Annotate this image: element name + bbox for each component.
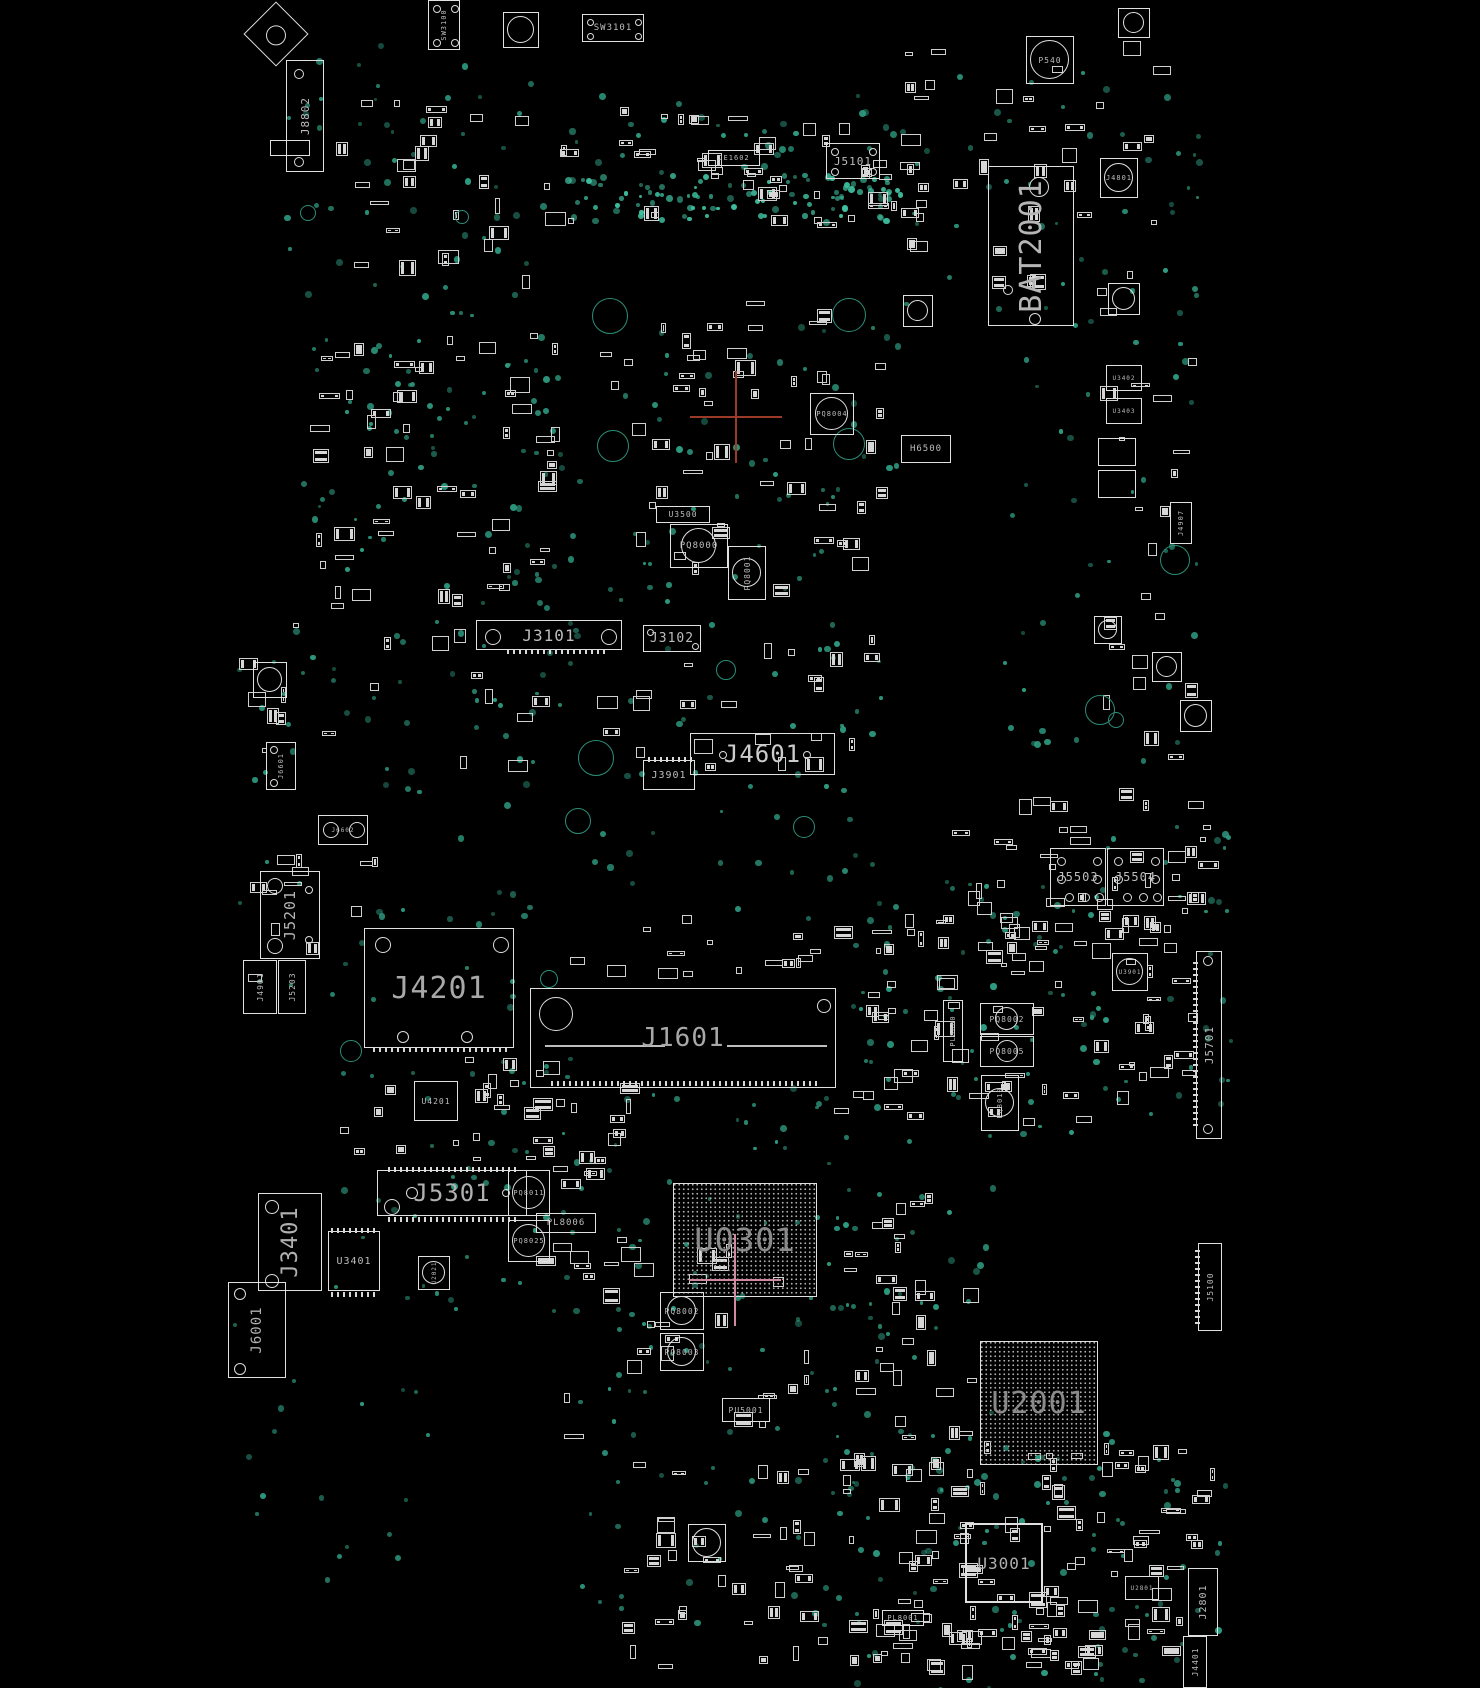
via-dot: [827, 875, 834, 882]
via-dot: [666, 195, 673, 202]
smd-pad: [1142, 1542, 1145, 1547]
via-dot: [788, 146, 795, 153]
via-dot: [454, 1307, 458, 1311]
via-dot: [345, 567, 350, 572]
via-dot: [710, 206, 715, 211]
smd-pad: [1058, 1607, 1063, 1610]
via-dot: [616, 1307, 621, 1312]
via-dot: [1192, 286, 1198, 292]
smd-part-outline: [1057, 1506, 1076, 1520]
via-dot: [564, 1275, 569, 1280]
via-dot: [647, 585, 652, 590]
smd-part-outline: [901, 134, 921, 146]
component-label-JE1602: JE1602: [709, 151, 759, 165]
via-dot: [947, 1210, 952, 1215]
via-dot: [636, 133, 641, 138]
smd-part-outline: [630, 1645, 636, 1660]
via-dot: [368, 536, 372, 540]
via-dot: [325, 338, 329, 342]
smd-part-outline: [553, 1243, 572, 1251]
via-dot: [912, 1355, 917, 1360]
smd-part-outline: [1132, 655, 1148, 669]
smd-part-outline: [951, 1486, 969, 1497]
smd-pad: [1078, 1526, 1081, 1529]
smd-pad: [851, 740, 854, 743]
via-dot: [623, 393, 629, 399]
smd-part-outline: [907, 929, 916, 935]
via-dot: [559, 465, 565, 471]
via-dot: [803, 194, 809, 200]
smd-part-outline: [857, 501, 866, 513]
smd-part-outline: [579, 1151, 595, 1164]
via-dot: [1067, 435, 1074, 442]
component-label-PL8000: PL8000: [923, 1022, 983, 1040]
via-dot: [474, 725, 479, 730]
smd-part-outline: [727, 348, 747, 359]
via-dot: [735, 1510, 742, 1517]
smd-pad: [843, 542, 846, 544]
smd-pad: [505, 429, 508, 432]
smd-part-outline: [1139, 1530, 1159, 1534]
via-dot: [1216, 899, 1222, 905]
smd-part-outline: [437, 486, 457, 492]
smd-part-outline: [415, 367, 424, 372]
via-dot: [870, 862, 875, 867]
smd-pad: [863, 1458, 866, 1469]
smd-part-outline: [843, 1475, 851, 1487]
via-dot: [1026, 1072, 1030, 1076]
smd-part-outline: [777, 1471, 789, 1485]
via-dot: [774, 814, 780, 820]
smd-part-outline: [331, 603, 344, 609]
via-dot: [702, 206, 706, 210]
smd-part-outline: [697, 158, 708, 163]
via-dot: [869, 731, 875, 737]
smd-part-outline: [1153, 395, 1172, 402]
smd-part-outline: [707, 940, 713, 945]
smd-pad: [359, 345, 362, 354]
smd-part-outline: [1019, 799, 1032, 815]
smd-pad: [658, 1535, 661, 1546]
smd-part-outline: [310, 425, 330, 432]
smd-pad: [454, 596, 461, 599]
smd-pad: [336, 529, 339, 539]
smd-part-outline: [895, 1416, 906, 1428]
smd-part-outline: [817, 371, 826, 383]
smd-pad: [395, 488, 398, 497]
via-dot: [879, 696, 883, 700]
smd-pad: [859, 503, 864, 506]
via-dot: [1061, 993, 1065, 997]
smd-part-outline: [782, 959, 795, 968]
smd-part-outline: [370, 201, 390, 205]
component-PQ8025: PQ8025: [508, 1220, 550, 1262]
via-dot: [694, 186, 698, 190]
via-dot: [1166, 683, 1173, 690]
smd-part-outline: [621, 1247, 642, 1262]
smd-part-outline: [465, 1057, 474, 1063]
via-dot: [318, 505, 322, 509]
smd-part-outline: [893, 1287, 907, 1301]
via-dot: [780, 121, 787, 128]
via-dot: [790, 723, 796, 729]
smd-part-outline: [1044, 1526, 1052, 1532]
component-label-PQ8000: PQ8000: [671, 525, 727, 567]
smd-part-outline: [626, 1099, 631, 1114]
smd-pad: [1106, 1450, 1107, 1453]
smd-part-outline: [1186, 1534, 1198, 1541]
smd-pad: [836, 928, 851, 931]
via-dot: [803, 367, 807, 371]
smd-pad: [855, 1461, 858, 1470]
smd-pad: [1120, 646, 1123, 648]
via-dot: [619, 196, 624, 201]
smd-pad: [1101, 913, 1109, 916]
via-dot: [1222, 831, 1228, 837]
smd-pad: [773, 217, 776, 224]
smd-pad: [1039, 942, 1042, 943]
smd-part-outline: [393, 392, 403, 403]
smd-part-outline: [571, 1103, 577, 1113]
via-dot: [666, 582, 671, 587]
via-dot: [312, 516, 319, 523]
smd-part-outline: [967, 1378, 977, 1383]
smd-pad: [933, 1500, 937, 1503]
via-dot: [461, 132, 465, 136]
component-FID2: [503, 12, 539, 48]
via-dot: [431, 451, 436, 456]
via-dot: [400, 639, 406, 645]
smd-part-outline: [1002, 1637, 1014, 1650]
via-dot: [435, 620, 439, 624]
smd-pad: [395, 230, 398, 231]
smd-pad: [442, 108, 445, 111]
via-dot: [1008, 725, 1014, 731]
smd-pad: [376, 1112, 381, 1115]
via-dot: [920, 1301, 924, 1305]
smd-part-outline: [536, 436, 555, 442]
via-dot: [877, 214, 883, 220]
via-dot: [238, 901, 242, 905]
via-dot: [831, 207, 835, 211]
smd-part-outline: [547, 450, 554, 455]
via-dot: [472, 415, 476, 419]
via-dot: [875, 1359, 879, 1363]
via-dot: [395, 1555, 401, 1561]
smd-pad: [783, 217, 786, 224]
smd-part-outline: [1119, 1064, 1135, 1070]
via-dot: [810, 1371, 815, 1376]
via-dot: [847, 817, 853, 823]
smd-pad: [769, 192, 772, 197]
smd-pad: [848, 1253, 851, 1255]
via-dot: [577, 479, 583, 485]
smd-part-outline: [1074, 941, 1087, 947]
component-label-J5301: J5301: [378, 1171, 526, 1215]
smd-part-outline: [658, 968, 678, 980]
smd-pad: [897, 1244, 898, 1247]
via-dot: [858, 1547, 864, 1553]
smd-part-outline: [561, 1179, 582, 1189]
component-J3901: J3901: [643, 760, 695, 790]
smd-part-outline: [963, 1288, 979, 1303]
smd-part-outline: [843, 1489, 851, 1494]
smd-part-outline: [632, 423, 646, 435]
smd-pad: [981, 161, 984, 173]
smd-pad: [315, 451, 326, 454]
via-dot: [1223, 846, 1227, 850]
component-label-PQ8003: PQ8003: [661, 1334, 703, 1370]
component-body-circle: [692, 1528, 721, 1557]
smd-pad: [540, 487, 555, 490]
smd-part-outline: [1172, 874, 1180, 881]
smd-pad: [1137, 1024, 1140, 1032]
smd-pad: [1058, 1612, 1063, 1615]
via-dot: [401, 1388, 405, 1392]
via-dot: [705, 214, 709, 218]
via-dot: [890, 131, 897, 138]
smd-pad: [388, 230, 391, 231]
smd-part-outline: [1164, 925, 1171, 933]
via-dot: [819, 549, 824, 554]
smd-pad: [410, 363, 413, 365]
smd-part-outline: [1144, 135, 1154, 142]
via-dot: [595, 159, 602, 166]
smd-part-outline: [855, 1252, 868, 1258]
fiducial-diamond: [243, 1, 308, 66]
component-PQ8004: PQ8004: [810, 393, 854, 435]
component-J1601: J1601: [530, 988, 836, 1088]
via-dot: [503, 733, 509, 739]
via-dot: [1164, 1575, 1169, 1580]
smd-pad: [620, 1117, 623, 1121]
smd-pad: [866, 655, 869, 660]
via-dot: [265, 860, 269, 864]
via-dot: [524, 359, 528, 363]
via-dot: [793, 175, 797, 179]
smd-pad: [649, 1562, 659, 1565]
via-dot: [842, 205, 849, 212]
smd-pad: [982, 1490, 984, 1493]
via-dot: [430, 1144, 434, 1148]
via-dot: [472, 689, 477, 694]
smd-pad: [552, 463, 555, 467]
via-dot: [993, 1493, 999, 1499]
smd-pad: [992, 1631, 995, 1635]
smd-part-outline: [479, 175, 488, 189]
smd-part-outline: [927, 1350, 937, 1366]
via-dot: [527, 905, 533, 911]
smd-pad: [335, 395, 338, 397]
smd-part-outline: [497, 1094, 504, 1106]
via-dot: [1109, 1607, 1115, 1613]
via-dot: [1176, 1092, 1182, 1098]
smd-part-outline: [1065, 1661, 1079, 1669]
smd-part-outline: [687, 355, 699, 361]
smd-pad: [972, 1608, 974, 1611]
via-dot: [779, 146, 786, 153]
via-dot: [994, 109, 1001, 116]
via-dot: [727, 195, 734, 202]
via-dot: [806, 916, 811, 921]
smd-pad: [931, 1670, 943, 1673]
smd-part-outline: [1172, 978, 1191, 984]
smd-pad: [968, 1632, 971, 1639]
via-ring: [832, 298, 866, 332]
via-dot: [933, 1304, 939, 1310]
via-dot: [968, 883, 972, 887]
smd-part-outline: [902, 1435, 917, 1440]
smd-pad: [691, 702, 694, 707]
smd-part-outline: [1123, 142, 1143, 150]
smd-pad: [931, 1662, 943, 1665]
smd-part-outline: [336, 142, 348, 156]
via-dot: [341, 1187, 348, 1194]
component-label-J5503: J5503: [1051, 849, 1105, 905]
smd-part-outline: [622, 1622, 635, 1634]
via-dot: [1000, 1628, 1004, 1632]
via-dot: [1135, 1605, 1139, 1609]
smd-part-outline: [473, 1133, 480, 1141]
smd-part-outline: [547, 461, 557, 469]
via-dot: [464, 421, 468, 425]
smd-part-outline: [684, 663, 693, 667]
via-dot: [1151, 1635, 1157, 1641]
smd-part-outline: [1109, 644, 1125, 650]
smd-part-outline: [929, 1462, 945, 1475]
via-dot: [992, 1606, 998, 1612]
via-dot: [575, 200, 580, 205]
via-dot: [990, 983, 996, 989]
smd-pad: [797, 1576, 800, 1580]
component-FID7: [1152, 652, 1182, 682]
smd-part-outline: [759, 137, 777, 151]
via-dot: [797, 576, 802, 581]
via-dot: [694, 1620, 701, 1627]
smd-pad: [1130, 1066, 1133, 1068]
via-dot: [1003, 661, 1007, 665]
via-dot: [894, 463, 899, 468]
component-body-circle: [1098, 620, 1117, 639]
via-dot: [411, 1071, 415, 1075]
via-dot: [789, 192, 795, 198]
component-label-P540: P540: [1027, 37, 1073, 83]
component-label-PQ8004: PQ8004: [811, 394, 853, 434]
via-dot: [957, 74, 963, 80]
smd-part-outline: [915, 1555, 932, 1566]
smd-part-outline: [850, 1655, 860, 1667]
smd-pad: [548, 1139, 551, 1142]
smd-part-outline: [1035, 946, 1047, 950]
via-dot: [836, 1435, 840, 1439]
smd-part-outline: [996, 89, 1013, 104]
smd-pad: [949, 1079, 952, 1089]
via-dot: [735, 494, 739, 498]
via-dot: [1175, 1488, 1180, 1493]
smd-pad: [1080, 1653, 1094, 1656]
via-dot: [871, 326, 875, 330]
smd-part-outline: [620, 107, 629, 117]
smd-pad: [663, 328, 665, 331]
via-dot: [836, 487, 840, 491]
smd-pad: [1186, 980, 1189, 982]
via-dot: [711, 1466, 715, 1470]
via-dot: [592, 218, 598, 224]
component-label-PQ8011: PQ8011: [509, 1171, 549, 1215]
smd-part-outline: [936, 1388, 954, 1396]
via-ring: [1160, 545, 1190, 575]
via-dot: [665, 353, 669, 357]
smd-pad: [878, 494, 886, 497]
via-dot: [543, 408, 549, 414]
smd-pad: [1154, 733, 1157, 744]
smd-pad: [473, 674, 476, 676]
via-dot: [840, 726, 846, 732]
via-dot: [528, 81, 534, 87]
via-dot: [619, 1594, 624, 1599]
smd-pad: [1151, 1567, 1162, 1570]
smd-part-outline: [1000, 913, 1013, 923]
smd-part-outline: [335, 555, 354, 561]
via-dot: [846, 1303, 850, 1307]
smd-pad: [331, 733, 334, 734]
smd-part-outline: [607, 965, 627, 977]
via-dot: [1189, 400, 1194, 405]
smd-pad: [1187, 693, 1196, 696]
via-dot: [391, 130, 395, 134]
via-dot: [1174, 1480, 1181, 1487]
smd-part-outline: [1127, 271, 1133, 279]
component-J5203: J5203: [278, 960, 306, 1014]
smd-part-outline: [893, 1643, 913, 1649]
via-dot: [1124, 1080, 1128, 1084]
smd-pad: [681, 375, 684, 377]
via-dot: [1218, 1541, 1222, 1545]
via-dot: [1093, 1059, 1100, 1066]
via-dot: [319, 1495, 324, 1500]
smd-part-outline: [872, 930, 892, 934]
via-dot: [558, 703, 562, 707]
smd-pad: [898, 1106, 901, 1108]
via-dot: [384, 179, 391, 186]
smd-pad: [694, 570, 697, 573]
via-dot: [915, 222, 919, 226]
smd-pad: [878, 410, 883, 413]
component-U2001: U2001: [980, 1341, 1098, 1465]
smd-pad: [1014, 1625, 1016, 1628]
component-J6001: J6001: [228, 1282, 286, 1378]
smd-pad: [437, 119, 440, 127]
smd-part-outline: [584, 1171, 597, 1176]
smd-pad: [1055, 1630, 1058, 1637]
via-dot: [552, 564, 557, 569]
via-dot: [1215, 1550, 1221, 1556]
via-dot: [482, 391, 486, 395]
smd-pad: [545, 1152, 553, 1155]
smd-pad: [1149, 137, 1152, 140]
smd-part-outline: [876, 487, 888, 498]
via-dot: [973, 1268, 980, 1275]
smd-part-outline: [863, 1091, 874, 1100]
component-PQ8010: PQ8010: [981, 1075, 1019, 1131]
via-dot: [861, 991, 865, 995]
pin-row: [373, 1047, 507, 1052]
smd-part-outline: [1168, 851, 1186, 863]
component-J3401: J3401: [258, 1193, 322, 1291]
smd-part-outline: [1167, 1566, 1184, 1571]
smd-part-outline: [613, 1129, 626, 1138]
via-dot: [676, 446, 683, 453]
